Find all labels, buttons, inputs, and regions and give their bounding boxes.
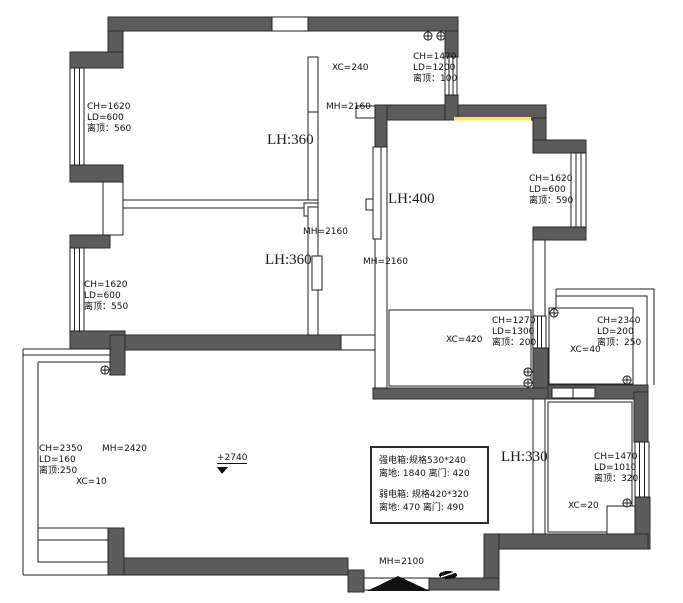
junction-symbol	[437, 32, 445, 40]
wall-highlight-soft	[454, 120, 531, 122]
door-leaf-bedroom1	[308, 57, 318, 112]
elevation-marker-label: +2740	[217, 453, 247, 464]
door-stop-symbol	[439, 571, 457, 579]
wall-highlight	[454, 117, 531, 120]
window-annotation-kitchen: CH=1270 LD=1300 离顶：200	[492, 316, 536, 349]
elevation-marker-triangle	[217, 467, 228, 474]
xc10-label: XC=10	[76, 477, 107, 488]
window-mid-left	[70, 248, 84, 331]
junction-symbol	[623, 499, 631, 507]
ceiling-height-label-bedroom2: LH:360	[265, 255, 312, 266]
ceiling-height-label-room400: LH:400	[388, 194, 435, 205]
door-leaf-bedroom2	[312, 256, 322, 290]
ceiling-height-label-bedroom1: LH:360	[267, 135, 314, 146]
window-annotation-top-left: CH=1620 LD=600 离顶：560	[87, 102, 131, 135]
window-annotation-living: CH=2350 LD=160 离顶:250	[39, 444, 83, 477]
door-height-label-top: MH=2160	[326, 102, 371, 113]
window-top-left	[70, 68, 84, 165]
junction-symbol	[101, 366, 109, 374]
door-leaf-room400	[373, 147, 381, 239]
floor-plan: CH=1620 LD=600 离顶：560 LH:360 XC=240 CH=1…	[0, 0, 683, 603]
window-annotation-right-bay: CH=1620 LD=600 离顶：590	[529, 174, 573, 207]
junction-symbol	[524, 368, 532, 376]
junction-symbol	[524, 379, 532, 387]
junction-symbol	[424, 32, 432, 40]
door-height-label-bedroom2: MH=2160	[303, 227, 348, 238]
window-right-bay	[571, 153, 586, 227]
xc420-label: XC=420	[446, 335, 483, 346]
door-leaves	[308, 57, 381, 290]
xc40-label: XC=40	[570, 345, 601, 356]
door-height-label-living: MH=2420	[102, 444, 147, 455]
junction-symbol	[623, 376, 631, 384]
door-height-label-entry: MH=2100	[379, 557, 424, 568]
ceiling-height-label-bathroom: LH:330	[501, 452, 548, 463]
window-annotation-mid-left: CH=1620 LD=600 离顶：550	[84, 280, 128, 313]
electrical-box-note: 强电箱:规格530*240 离地: 1840 离门: 420 弱电箱: 规格42…	[370, 446, 489, 524]
window-annotation-bathroom: CH=1470 LD=1010 离顶：320	[594, 452, 638, 485]
window-annotation-top-right: CH=1470 LD=1200 离顶：100	[413, 52, 457, 85]
window-annotation-balcony: CH=2340 LD=200 离顶：250	[597, 316, 641, 349]
xc20-label: XC=20	[568, 501, 599, 512]
junction-symbol	[550, 309, 558, 317]
door-height-label-room400: MH=2160	[363, 257, 408, 268]
windows	[70, 57, 649, 497]
xc240-label: XC=240	[332, 63, 369, 74]
shower-box	[607, 506, 635, 534]
